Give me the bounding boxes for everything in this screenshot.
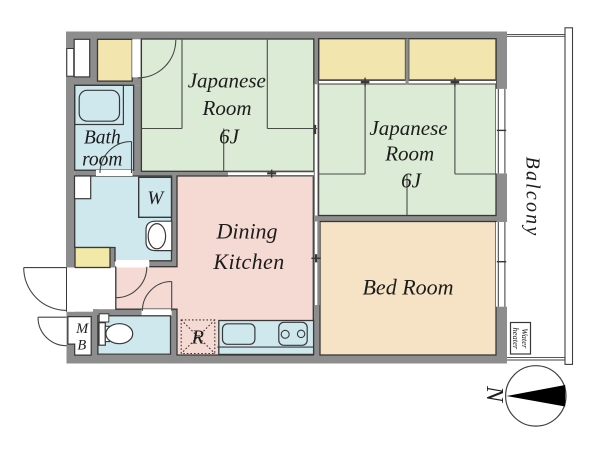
- svg-text:Balcony: Balcony: [522, 157, 544, 238]
- svg-text:6J: 6J: [401, 168, 423, 192]
- svg-text:W: W: [147, 188, 165, 209]
- svg-text:Dining: Dining: [215, 218, 277, 243]
- svg-text:Bed Room: Bed Room: [362, 274, 453, 299]
- svg-text:B: B: [77, 337, 86, 353]
- svg-text:Room: Room: [202, 96, 252, 120]
- svg-text:R: R: [191, 326, 204, 348]
- svg-text:Japanese: Japanese: [188, 68, 266, 92]
- svg-text:N: N: [481, 385, 507, 404]
- svg-text:room: room: [82, 149, 122, 170]
- svg-text:M: M: [75, 321, 89, 337]
- svg-text:heater: heater: [511, 327, 521, 349]
- svg-text:6J: 6J: [219, 124, 241, 148]
- svg-text:Japanese: Japanese: [369, 116, 447, 140]
- svg-text:Bath: Bath: [84, 128, 121, 149]
- svg-text:Room: Room: [384, 142, 434, 166]
- svg-text:Kitchen: Kitchen: [212, 249, 284, 274]
